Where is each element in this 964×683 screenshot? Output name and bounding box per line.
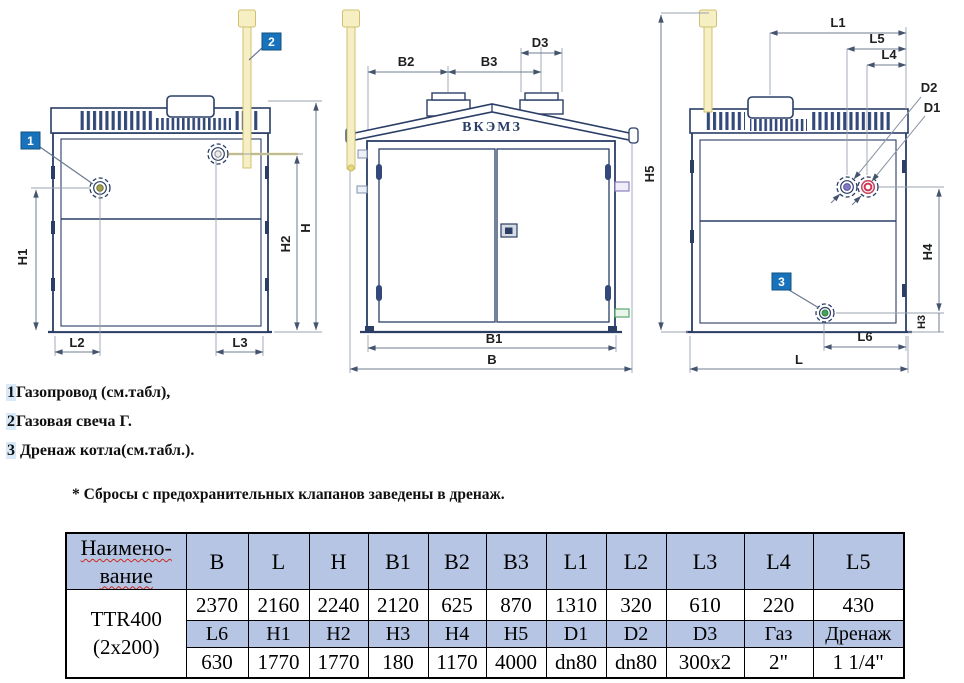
right-side-view: 3 H5 L1 L5 L4 D2 D1 H4 H3 L6 L — [642, 10, 944, 373]
col-header-B2: B2 — [428, 533, 486, 590]
dim-label-b2: B2 — [398, 54, 415, 69]
vent-grille — [78, 111, 154, 130]
col-header-H5: H5 — [486, 621, 546, 648]
col-header-B1: B1 — [368, 533, 428, 590]
return-port-d1 — [858, 177, 878, 197]
dim-label-b3: B3 — [481, 54, 498, 69]
legend-2-number: 2 — [6, 413, 16, 430]
value-L6: 630 — [186, 648, 248, 679]
dim-label-h1: H1 — [15, 249, 30, 266]
value-H2: 1770 — [309, 648, 368, 679]
dim-label-h3: H3 — [916, 315, 928, 329]
legend-3-number: 3 — [6, 442, 16, 459]
col-header-H3: H3 — [368, 621, 428, 648]
dim-label-h5: H5 — [642, 166, 657, 183]
value-L5: 430 — [813, 590, 904, 621]
value-D1: dn80 — [546, 648, 606, 679]
col-header-drain: Дренаж — [813, 621, 904, 648]
col-header-L1: L1 — [546, 533, 606, 590]
value-B1: 2120 — [368, 590, 428, 621]
dimension-table: Наимено- вание B L H B1 B2 B3 L1 L2 L3 L… — [65, 532, 905, 679]
value-H5: 4000 — [486, 648, 546, 679]
dim-label-l5: L5 — [869, 31, 884, 46]
table-name-header: Наимено- вание — [66, 533, 186, 590]
legend-1-number: 1 — [6, 384, 16, 401]
col-header-H4: H4 — [428, 621, 486, 648]
dim-label-l2: L2 — [69, 335, 84, 350]
legend-item-2: 2Газовая свеча Г. — [6, 413, 132, 431]
model-power: (2x200) — [67, 634, 186, 661]
front-view: ВКЭМЗ — [343, 10, 639, 373]
value-D3: 300x2 — [666, 648, 744, 679]
value-B: 2370 — [186, 590, 248, 621]
col-header-D2: D2 — [606, 621, 666, 648]
left-side-view: 1 2 H1 H2 H L2 L3 — [15, 10, 322, 356]
col-header-L: L — [248, 533, 309, 590]
dim-label-d2: D2 — [921, 80, 938, 95]
dim-label-l: L — [795, 352, 803, 367]
value-H: 2240 — [309, 590, 368, 621]
dim-label-d3: D3 — [532, 35, 549, 50]
dim-label-l6: L6 — [857, 329, 872, 344]
col-header-H: H — [309, 533, 368, 590]
value-L1: 1310 — [546, 590, 606, 621]
drawing-canvas: 1 2 H1 H2 H L2 L3 — [0, 0, 964, 380]
value-H4: 1170 — [428, 648, 486, 679]
dim-label-b1: B1 — [486, 331, 503, 346]
value-L: 2160 — [248, 590, 309, 621]
dim-label-h: H — [298, 223, 313, 232]
value-L4: 220 — [744, 590, 813, 621]
name-header-line1: Наимено- — [81, 535, 172, 560]
dim-label-h4: H4 — [920, 243, 935, 260]
value-D2: dn80 — [606, 648, 666, 679]
value-B3: 870 — [486, 590, 546, 621]
value-gas: 2" — [744, 648, 813, 679]
legend-1-text: Газопровод (см.табл), — [16, 384, 170, 401]
table-values-row-2: 630 1770 1770 180 1170 4000 dn80 dn80 30… — [66, 648, 904, 679]
col-header-B3: B3 — [486, 533, 546, 590]
gas-candle-pipe-right — [700, 10, 717, 112]
safety-valve-footnote: * Сбросы с предохранительных клапанов за… — [72, 486, 505, 504]
col-header-L3: L3 — [666, 533, 744, 590]
value-H3: 180 — [368, 648, 428, 679]
name-header-line2: вание — [100, 563, 153, 588]
callout-2-number: 2 — [268, 35, 275, 49]
legend-3-text: Дренаж котла(см.табл.). — [20, 442, 194, 459]
dim-label-l3: L3 — [232, 335, 247, 350]
dim-label-d1: D1 — [924, 100, 941, 115]
col-header-H2: H2 — [309, 621, 368, 648]
col-header-gas: Газ — [744, 621, 813, 648]
vent-grille — [704, 112, 745, 130]
dim-label-b: B — [487, 352, 496, 367]
legend-2-text: Газовая свеча Г. — [16, 413, 132, 430]
col-header-L4: L4 — [744, 533, 813, 590]
value-L3: 610 — [666, 590, 744, 621]
top-cap — [167, 96, 214, 117]
technical-drawing-page: 1 2 H1 H2 H L2 L3 — [0, 0, 964, 683]
col-header-D1: D1 — [546, 621, 606, 648]
col-header-L5: L5 — [813, 533, 904, 590]
heating-pipe-stub — [615, 182, 629, 191]
col-header-L6: L6 — [186, 621, 248, 648]
value-H1: 1770 — [248, 648, 309, 679]
table-header-row-1: Наимено- вание B L H B1 B2 B3 L1 L2 L3 L… — [66, 533, 904, 590]
col-header-L2: L2 — [606, 533, 666, 590]
table-values-row-1: TTR400 (2x200) 2370 2160 2240 2120 625 8… — [66, 590, 904, 621]
manufacturer-logo-text: ВКЭМЗ — [462, 120, 522, 135]
dim-label-l1: L1 — [830, 15, 845, 30]
callout-1-number: 1 — [27, 134, 34, 148]
callout-3-number: 3 — [778, 275, 785, 289]
legend-item-3: 3 Дренаж котла(см.табл.). — [6, 442, 194, 460]
value-B2: 625 — [428, 590, 486, 621]
col-header-D3: D3 — [666, 621, 744, 648]
value-drain: 1 1/4" — [813, 648, 904, 679]
model-cell: TTR400 (2x200) — [66, 590, 186, 679]
value-L2: 320 — [606, 590, 666, 621]
col-header-H1: H1 — [248, 621, 309, 648]
legend-item-1: 1Газопровод (см.табл), — [6, 384, 170, 402]
col-header-B: B — [186, 533, 248, 590]
door-handle — [501, 224, 517, 237]
top-cap — [748, 97, 793, 118]
dim-label-l4: L4 — [881, 47, 897, 62]
model-name: TTR400 — [67, 606, 186, 633]
dim-label-h2: H2 — [278, 236, 293, 253]
gas-candle-pipe-front — [343, 10, 360, 169]
table-header-row-2: L6 H1 H2 H3 H4 H5 D1 D2 D3 Газ Дренаж — [66, 621, 904, 648]
drain-pipe-stub — [615, 309, 629, 317]
